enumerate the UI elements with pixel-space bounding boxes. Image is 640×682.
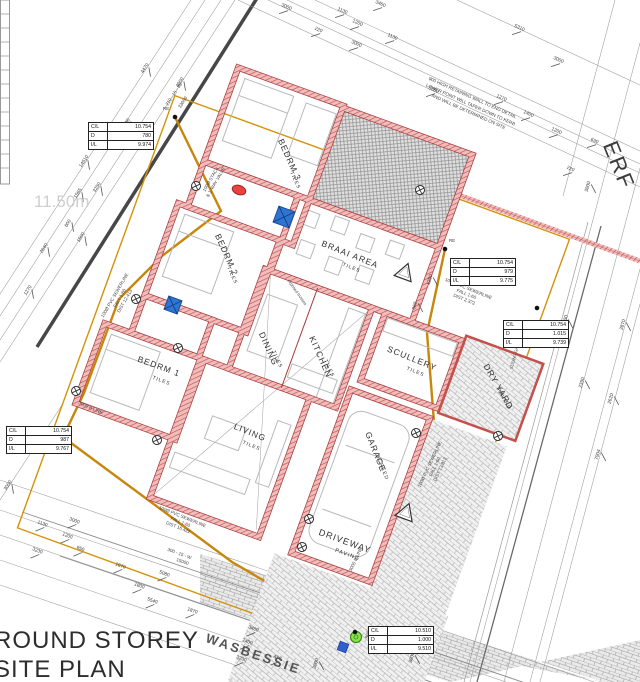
callout-key: D xyxy=(369,636,388,644)
dimension-label: 1500 xyxy=(76,231,92,247)
callout-value: 1.015 xyxy=(523,330,568,338)
watermark-level: 11.50m xyxy=(34,192,89,212)
left-edge-wall xyxy=(0,0,10,184)
callout-key: I/L xyxy=(7,445,26,453)
dimension-label: 1270 xyxy=(23,284,39,300)
sewer-pipe-west xyxy=(63,117,221,437)
re-dot-symbol xyxy=(442,246,448,252)
svg-text:AND WILL BE DETERMINED ON SITE: AND WILL BE DETERMINED ON SITE xyxy=(431,93,506,130)
room-label: LIVING xyxy=(233,421,268,443)
callout-value: 1.000 xyxy=(388,636,433,644)
title-line-2: SITE PLAN xyxy=(0,655,199,682)
svg-text:1870: 1870 xyxy=(186,606,198,615)
svg-text:3000: 3000 xyxy=(350,39,362,49)
dimension-label: 3230 xyxy=(29,546,43,561)
svg-text:3000: 3000 xyxy=(552,55,564,65)
callout-value: 9.974 xyxy=(108,141,153,149)
callout-value: 780 xyxy=(108,132,153,140)
svg-text:TILES: TILES xyxy=(151,375,171,387)
callout-key: C/L xyxy=(504,321,523,329)
dimension-label: 1400 xyxy=(520,109,535,124)
room-label: TILES xyxy=(241,440,261,453)
svg-text:5310: 5310 xyxy=(513,23,525,33)
svg-text:1400: 1400 xyxy=(522,109,534,119)
svg-text:2390: 2390 xyxy=(578,376,587,388)
dimension-label: 2620 xyxy=(607,392,621,406)
svg-text:1200: 1200 xyxy=(550,126,562,136)
dimension-label: 630 xyxy=(587,137,599,151)
dimension-label: 600 xyxy=(63,218,78,232)
svg-text:3000: 3000 xyxy=(68,516,80,525)
svg-text:5080: 5080 xyxy=(158,569,170,578)
callout-value: 10.510 xyxy=(388,627,433,635)
callout-key: I/L xyxy=(504,339,523,347)
callout-value: 10.754 xyxy=(523,321,568,329)
dimension-label: 5540 xyxy=(144,596,158,611)
level-callout-box: C/L10.754D979I/L9.775 xyxy=(450,258,516,286)
callout-value: 9.767 xyxy=(26,445,71,453)
callout-key: C/L xyxy=(89,123,108,131)
callout-key: D xyxy=(7,436,26,444)
note-label: RE xyxy=(449,238,455,243)
callout-value: 987 xyxy=(26,436,71,444)
note-label: AND WILL BE DETERMINED ON SITE xyxy=(431,93,506,130)
warn-triangle-symbol xyxy=(394,260,416,281)
room-label: TILES xyxy=(151,375,171,387)
svg-text:5540: 5540 xyxy=(146,596,158,605)
title-block: ROUND STOREY SITE PLAN xyxy=(0,626,199,682)
dimension-label: 2870 xyxy=(619,318,633,332)
svg-text:220: 220 xyxy=(314,26,324,35)
site-plan-page: 3460300011301200220113030005310300050801… xyxy=(0,0,640,682)
dimension-label: 1130 xyxy=(384,32,399,47)
level-callout-box: C/L10.754D780I/L9.974 xyxy=(88,122,154,150)
dimension-label: 2390 xyxy=(578,376,592,390)
svg-text:220: 220 xyxy=(566,165,576,174)
level-callout-box: C/L10.510D1.000I/L9.510 xyxy=(368,626,434,654)
dimension-label: 3000 xyxy=(278,2,293,17)
dimension-label: 5310 xyxy=(511,23,526,38)
dimension-label: 3000 xyxy=(584,180,598,194)
svg-text:7004: 7004 xyxy=(594,448,603,460)
dimension-label: 3250 xyxy=(92,181,108,197)
svg-text:LOWER POINT WILL TAPER DOWN TO: LOWER POINT WILL TAPER DOWN TO KERB xyxy=(425,83,516,127)
svg-text:RE: RE xyxy=(163,106,169,111)
callout-key: I/L xyxy=(369,645,388,653)
room-label: BEDRM 1 xyxy=(136,354,182,379)
callout-key: C/L xyxy=(369,627,388,635)
dimension-label: 2640 xyxy=(39,242,55,258)
callout-value: 979 xyxy=(470,268,515,276)
level-callout-box: C/L10.754D987I/L9.767 xyxy=(6,426,72,454)
dimension-label: 7004 xyxy=(594,448,608,462)
note-label: LOWER POINT WILL TAPER DOWN TO KERB xyxy=(425,83,516,127)
room-label: TILES xyxy=(341,262,361,275)
callout-key: D xyxy=(504,330,523,338)
callout-value: 10.754 xyxy=(26,427,71,435)
svg-text:LIVING: LIVING xyxy=(233,421,268,443)
dimension-label: 1130 xyxy=(34,519,48,534)
callout-key: D xyxy=(451,268,470,276)
callout-key: C/L xyxy=(451,259,470,267)
svg-text:1870: 1870 xyxy=(114,561,126,570)
callout-value: 10.754 xyxy=(470,259,515,267)
dimension-label: 1870 xyxy=(184,606,198,621)
dimension-label: 1200 xyxy=(349,18,364,33)
callout-key: C/L xyxy=(7,427,26,435)
red-oval-symbol xyxy=(231,183,247,196)
callout-key: D xyxy=(89,132,108,140)
svg-text:BEDRM 1: BEDRM 1 xyxy=(136,354,182,379)
level-callout-box: C/L10.754D1.015I/L9.739 xyxy=(503,320,569,348)
callout-key: I/L xyxy=(451,277,470,285)
dimension-label: 1130 xyxy=(334,6,349,21)
dimension-label: 3460 xyxy=(372,0,387,15)
svg-text:1130: 1130 xyxy=(386,32,398,42)
svg-text:2870: 2870 xyxy=(619,318,628,330)
callout-value: 9.775 xyxy=(470,277,515,285)
dimension-label: 14510 xyxy=(78,154,96,172)
svg-text:600: 600 xyxy=(63,218,73,228)
note-label: RE xyxy=(163,106,169,111)
svg-text:TILES: TILES xyxy=(241,440,261,453)
callout-value: 10.754 xyxy=(108,123,153,131)
callout-key: I/L xyxy=(89,141,108,149)
svg-text:TILES: TILES xyxy=(341,262,361,275)
re-dot-symbol xyxy=(534,305,540,311)
dimension-label: 220 xyxy=(311,26,323,40)
svg-text:3000: 3000 xyxy=(584,180,593,192)
callout-value: 9.739 xyxy=(523,339,568,347)
erf-label: ERF xyxy=(598,137,640,193)
title-line-1: ROUND STOREY xyxy=(0,626,199,655)
dimension-label: 3000 xyxy=(550,55,565,70)
svg-text:RE: RE xyxy=(449,238,455,243)
callout-value: 9.510 xyxy=(388,645,433,653)
